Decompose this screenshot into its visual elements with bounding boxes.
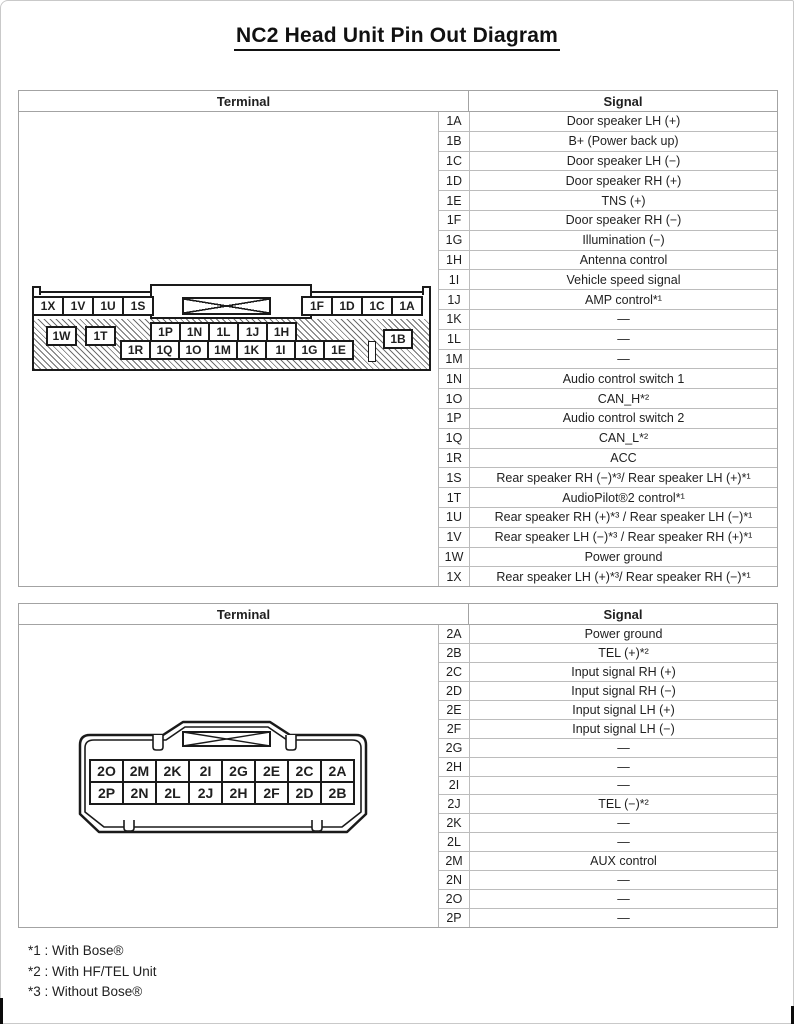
pinout-table-connector-1: Terminal Signal 1X1V1U1S 1F1D1C1A (18, 90, 778, 587)
terminal-cell: 2L (439, 833, 470, 851)
pin-label: 1Q (149, 340, 180, 360)
pin-label: 1W (46, 326, 77, 346)
pin-label: 1U (92, 296, 124, 316)
pin-label: 1I (265, 340, 296, 360)
terminal-cell: 1W (439, 548, 470, 567)
document-page: { "page": { "title": "NC2 Head Unit Pin … (0, 0, 794, 1024)
signal-cell: B+ (Power back up) (470, 132, 777, 151)
table-row: 1N Audio control switch 1 (439, 369, 777, 389)
table-row: 1J AMP control*¹ (439, 290, 777, 310)
pin-label: 1E (323, 340, 354, 360)
pin-label: 2C (287, 759, 322, 783)
signal-cell: AudioPilot®2 control*¹ (470, 488, 777, 507)
connector-1-key-icon (182, 297, 271, 315)
pin-label: 1D (331, 296, 363, 316)
pin-label: 1L (208, 322, 239, 342)
terminal-cell: 1B (439, 132, 470, 151)
table-row: 2M AUX control (439, 852, 777, 871)
signal-cell: Antenna control (470, 251, 777, 270)
connector-2-key-icon (183, 732, 270, 746)
connector-1-corner-notch-right (422, 286, 431, 295)
table-row: 2B TEL (+)*² (439, 644, 777, 663)
terminal-cell: 1G (439, 231, 470, 250)
connector-1-left-pins: 1W1T (46, 326, 116, 346)
table-row: 2J TEL (−)*² (439, 795, 777, 814)
terminal-column-header: Terminal (19, 604, 469, 624)
signal-column-header: Signal (469, 604, 777, 624)
table-row: 2A Power ground (439, 625, 777, 644)
pin-label: 1P (150, 322, 181, 342)
table-row: 1H Antenna control (439, 251, 777, 271)
table-row: 2K — (439, 814, 777, 833)
table-row: 1R ACC (439, 449, 777, 469)
terminal-cell: 2I (439, 777, 470, 795)
signal-cell: Rear speaker LH (−)*³ / Rear speaker RH … (470, 528, 777, 547)
pin-label: 2I (188, 759, 223, 783)
signal-cell: TNS (+) (470, 191, 777, 210)
table-row: 1V Rear speaker LH (−)*³ / Rear speaker … (439, 528, 777, 548)
terminal-cell: 2O (439, 890, 470, 908)
signal-cell: — (470, 739, 777, 757)
table-row: 1U Rear speaker RH (+)*³ / Rear speaker … (439, 508, 777, 528)
terminal-cell: 2G (439, 739, 470, 757)
pin-label: 2M (122, 759, 157, 783)
table-row: 1M — (439, 350, 777, 370)
pin-label: 2N (122, 781, 157, 805)
pin-label: 1T (85, 326, 116, 346)
table-row: 2N — (439, 871, 777, 890)
pin-label: 1F (301, 296, 333, 316)
pin-label: 1M (207, 340, 238, 360)
pin-label: 2B (320, 781, 355, 805)
table-row: 2D Input signal RH (−) (439, 682, 777, 701)
pin-label: 2A (320, 759, 355, 783)
table-row: 1O CAN_H*² (439, 389, 777, 409)
pin-label: 1V (62, 296, 94, 316)
table-row: 2C Input signal RH (+) (439, 663, 777, 682)
signal-cell: Audio control switch 1 (470, 369, 777, 388)
scan-artifact-left (0, 998, 3, 1024)
table2-header-row: Terminal Signal (19, 604, 777, 625)
terminal-cell: 1T (439, 488, 470, 507)
table2-signal-rows: 2A Power ground 2B TEL (+)*² 2C Input si… (439, 625, 777, 927)
table-row: 2O — (439, 890, 777, 909)
connector-2-diagram-cell: 2O2M2K2I2G2E2C2A 2P2N2L2J2H2F2D2B (19, 625, 439, 927)
table-row: 1C Door speaker LH (−) (439, 152, 777, 172)
terminal-cell: 1V (439, 528, 470, 547)
terminal-cell: 1S (439, 468, 470, 487)
signal-cell: — (470, 871, 777, 889)
terminal-cell: 1K (439, 310, 470, 329)
terminal-cell: 1O (439, 389, 470, 408)
connector-1-diagram: 1X1V1U1S 1F1D1C1A 1W1T 1P1N1L1J1H 1R1Q1O… (30, 284, 435, 376)
terminal-cell: 1D (439, 171, 470, 190)
table-row: 1D Door speaker RH (+) (439, 171, 777, 191)
terminal-cell: 1C (439, 152, 470, 171)
connector-1-middle-lower-row: 1R1Q1O1M1K1I1G1E (122, 340, 354, 360)
terminal-cell: 1A (439, 112, 470, 131)
signal-cell: Door speaker LH (−) (470, 152, 777, 171)
signal-cell: Input signal LH (+) (470, 701, 777, 719)
signal-cell: AUX control (470, 852, 777, 870)
terminal-cell: 2K (439, 814, 470, 832)
pin-label: 1A (391, 296, 423, 316)
signal-cell: — (470, 909, 777, 927)
connector-1-slot (368, 341, 376, 362)
signal-cell: CAN_L*² (470, 429, 777, 448)
signal-cell: — (470, 330, 777, 349)
signal-cell: TEL (+)*² (470, 644, 777, 662)
table-row: 1E TNS (+) (439, 191, 777, 211)
terminal-cell: 2H (439, 758, 470, 776)
table1-body: 1X1V1U1S 1F1D1C1A 1W1T 1P1N1L1J1H 1R1Q1O… (19, 112, 777, 586)
terminal-cell: 1R (439, 449, 470, 468)
signal-column-header: Signal (469, 91, 777, 111)
table-row: 2P — (439, 909, 777, 927)
signal-cell: Power ground (470, 548, 777, 567)
pin-label: 2J (188, 781, 223, 805)
pin-label: 2P (89, 781, 124, 805)
terminal-cell: 1J (439, 290, 470, 309)
signal-cell: ACC (470, 449, 777, 468)
terminal-cell: 1H (439, 251, 470, 270)
terminal-cell: 2C (439, 663, 470, 681)
signal-cell: Power ground (470, 625, 777, 643)
terminal-cell: 2B (439, 644, 470, 662)
table1-signal-rows: 1A Door speaker LH (+) 1B B+ (Power back… (439, 112, 777, 586)
connector-1-top-row-left: 1X1V1U1S (34, 296, 154, 316)
pin-label: 1B (383, 329, 413, 349)
signal-cell: CAN_H*² (470, 389, 777, 408)
terminal-cell: 2J (439, 795, 470, 813)
signal-cell: Illumination (−) (470, 231, 777, 250)
signal-cell: Rear speaker RH (+)*³ / Rear speaker LH … (470, 508, 777, 527)
terminal-cell: 2M (439, 852, 470, 870)
signal-cell: Door speaker RH (−) (470, 211, 777, 230)
signal-cell: — (470, 890, 777, 908)
table-row: 1A Door speaker LH (+) (439, 112, 777, 132)
signal-cell: Input signal LH (−) (470, 720, 777, 738)
table-row: 1B B+ (Power back up) (439, 132, 777, 152)
table-row: 1G Illumination (−) (439, 231, 777, 251)
table-row: 2F Input signal LH (−) (439, 720, 777, 739)
signal-cell: Door speaker RH (+) (470, 171, 777, 190)
pin-label: 1G (294, 340, 325, 360)
pin-label: 1H (266, 322, 297, 342)
page-title-text: NC2 Head Unit Pin Out Diagram (234, 24, 560, 51)
terminal-cell: 1I (439, 270, 470, 289)
pin-label: 1S (122, 296, 154, 316)
signal-cell: — (470, 758, 777, 776)
pin-label: 1R (120, 340, 151, 360)
terminal-cell: 2A (439, 625, 470, 643)
table-row: 2I — (439, 777, 777, 796)
connector-1-diagram-cell: 1X1V1U1S 1F1D1C1A 1W1T 1P1N1L1J1H 1R1Q1O… (19, 112, 439, 586)
terminal-column-header: Terminal (19, 91, 469, 111)
pin-label: 2G (221, 759, 256, 783)
table-row: 1K — (439, 310, 777, 330)
signal-cell: Input signal RH (−) (470, 682, 777, 700)
terminal-cell: 1E (439, 191, 470, 210)
signal-cell: — (470, 814, 777, 832)
terminal-cell: 1Q (439, 429, 470, 448)
terminal-cell: 1U (439, 508, 470, 527)
terminal-cell: 2E (439, 701, 470, 719)
footnote: *3 : Without Bose® (28, 982, 157, 1003)
pin-label: 2E (254, 759, 289, 783)
table-row: 2H — (439, 758, 777, 777)
pin-label: 2K (155, 759, 190, 783)
table-row: 1L — (439, 330, 777, 350)
pin-label: 1K (236, 340, 267, 360)
pin-label: 2L (155, 781, 190, 805)
signal-cell: Door speaker LH (+) (470, 112, 777, 131)
pin-label: 1O (178, 340, 209, 360)
pin-label: 2O (89, 759, 124, 783)
terminal-cell: 1X (439, 567, 470, 586)
pin-label: 1C (361, 296, 393, 316)
terminal-cell: 1M (439, 350, 470, 369)
table-row: 1Q CAN_L*² (439, 429, 777, 449)
pin-label: 2F (254, 781, 289, 805)
signal-cell: AMP control*¹ (470, 290, 777, 309)
terminal-cell: 2D (439, 682, 470, 700)
table2-body: 2O2M2K2I2G2E2C2A 2P2N2L2J2H2F2D2B 2A Pow… (19, 625, 777, 927)
table-row: 1P Audio control switch 2 (439, 409, 777, 429)
pin-label: 2D (287, 781, 322, 805)
pin-label: 1X (32, 296, 64, 316)
connector-1-corner-notch-left (32, 286, 41, 295)
terminal-cell: 2P (439, 909, 470, 927)
pin-label: 1N (179, 322, 210, 342)
pin-label: 2H (221, 781, 256, 805)
signal-cell: TEL (−)*² (470, 795, 777, 813)
signal-cell: Rear speaker LH (+)*³/ Rear speaker RH (… (470, 567, 777, 586)
terminal-cell: 1N (439, 369, 470, 388)
table-row: 2L — (439, 833, 777, 852)
signal-cell: — (470, 833, 777, 851)
table-row: 2G — (439, 739, 777, 758)
signal-cell: Rear speaker RH (−)*³/ Rear speaker LH (… (470, 468, 777, 487)
table-row: 1T AudioPilot®2 control*¹ (439, 488, 777, 508)
connector-2-pin-row-bottom: 2P2N2L2J2H2F2D2B (91, 781, 355, 805)
connector-2-diagram: 2O2M2K2I2G2E2C2A 2P2N2L2J2H2F2D2B (78, 714, 368, 836)
signal-cell: — (470, 350, 777, 369)
terminal-cell: 2N (439, 871, 470, 889)
connector-1-top-row-right: 1F1D1C1A (303, 296, 423, 316)
connector-2-pin-grid: 2O2M2K2I2G2E2C2A 2P2N2L2J2H2F2D2B (91, 759, 355, 805)
signal-cell: — (470, 310, 777, 329)
table-row: 1F Door speaker RH (−) (439, 211, 777, 231)
page-title: NC2 Head Unit Pin Out Diagram (0, 24, 794, 51)
table-row: 1S Rear speaker RH (−)*³/ Rear speaker L… (439, 468, 777, 488)
terminal-cell: 1F (439, 211, 470, 230)
pin-label: 1J (237, 322, 268, 342)
connector-1-middle-upper-row: 1P1N1L1J1H (152, 322, 297, 342)
table-row: 1X Rear speaker LH (+)*³/ Rear speaker R… (439, 567, 777, 586)
terminal-cell: 2F (439, 720, 470, 738)
connector-2-pin-row-top: 2O2M2K2I2G2E2C2A (91, 759, 355, 783)
signal-cell: Input signal RH (+) (470, 663, 777, 681)
footnotes: *1 : With Bose®*2 : With HF/TEL Unit*3 :… (28, 941, 157, 1003)
terminal-cell: 1L (439, 330, 470, 349)
table-row: 1W Power ground (439, 548, 777, 568)
terminal-cell: 1P (439, 409, 470, 428)
table-row: 2E Input signal LH (+) (439, 701, 777, 720)
signal-cell: Audio control switch 2 (470, 409, 777, 428)
table1-header-row: Terminal Signal (19, 91, 777, 112)
signal-cell: Vehicle speed signal (470, 270, 777, 289)
pinout-table-connector-2: Terminal Signal (18, 603, 778, 928)
table-row: 1I Vehicle speed signal (439, 270, 777, 290)
footnote: *1 : With Bose® (28, 941, 157, 962)
signal-cell: — (470, 777, 777, 795)
footnote: *2 : With HF/TEL Unit (28, 962, 157, 983)
